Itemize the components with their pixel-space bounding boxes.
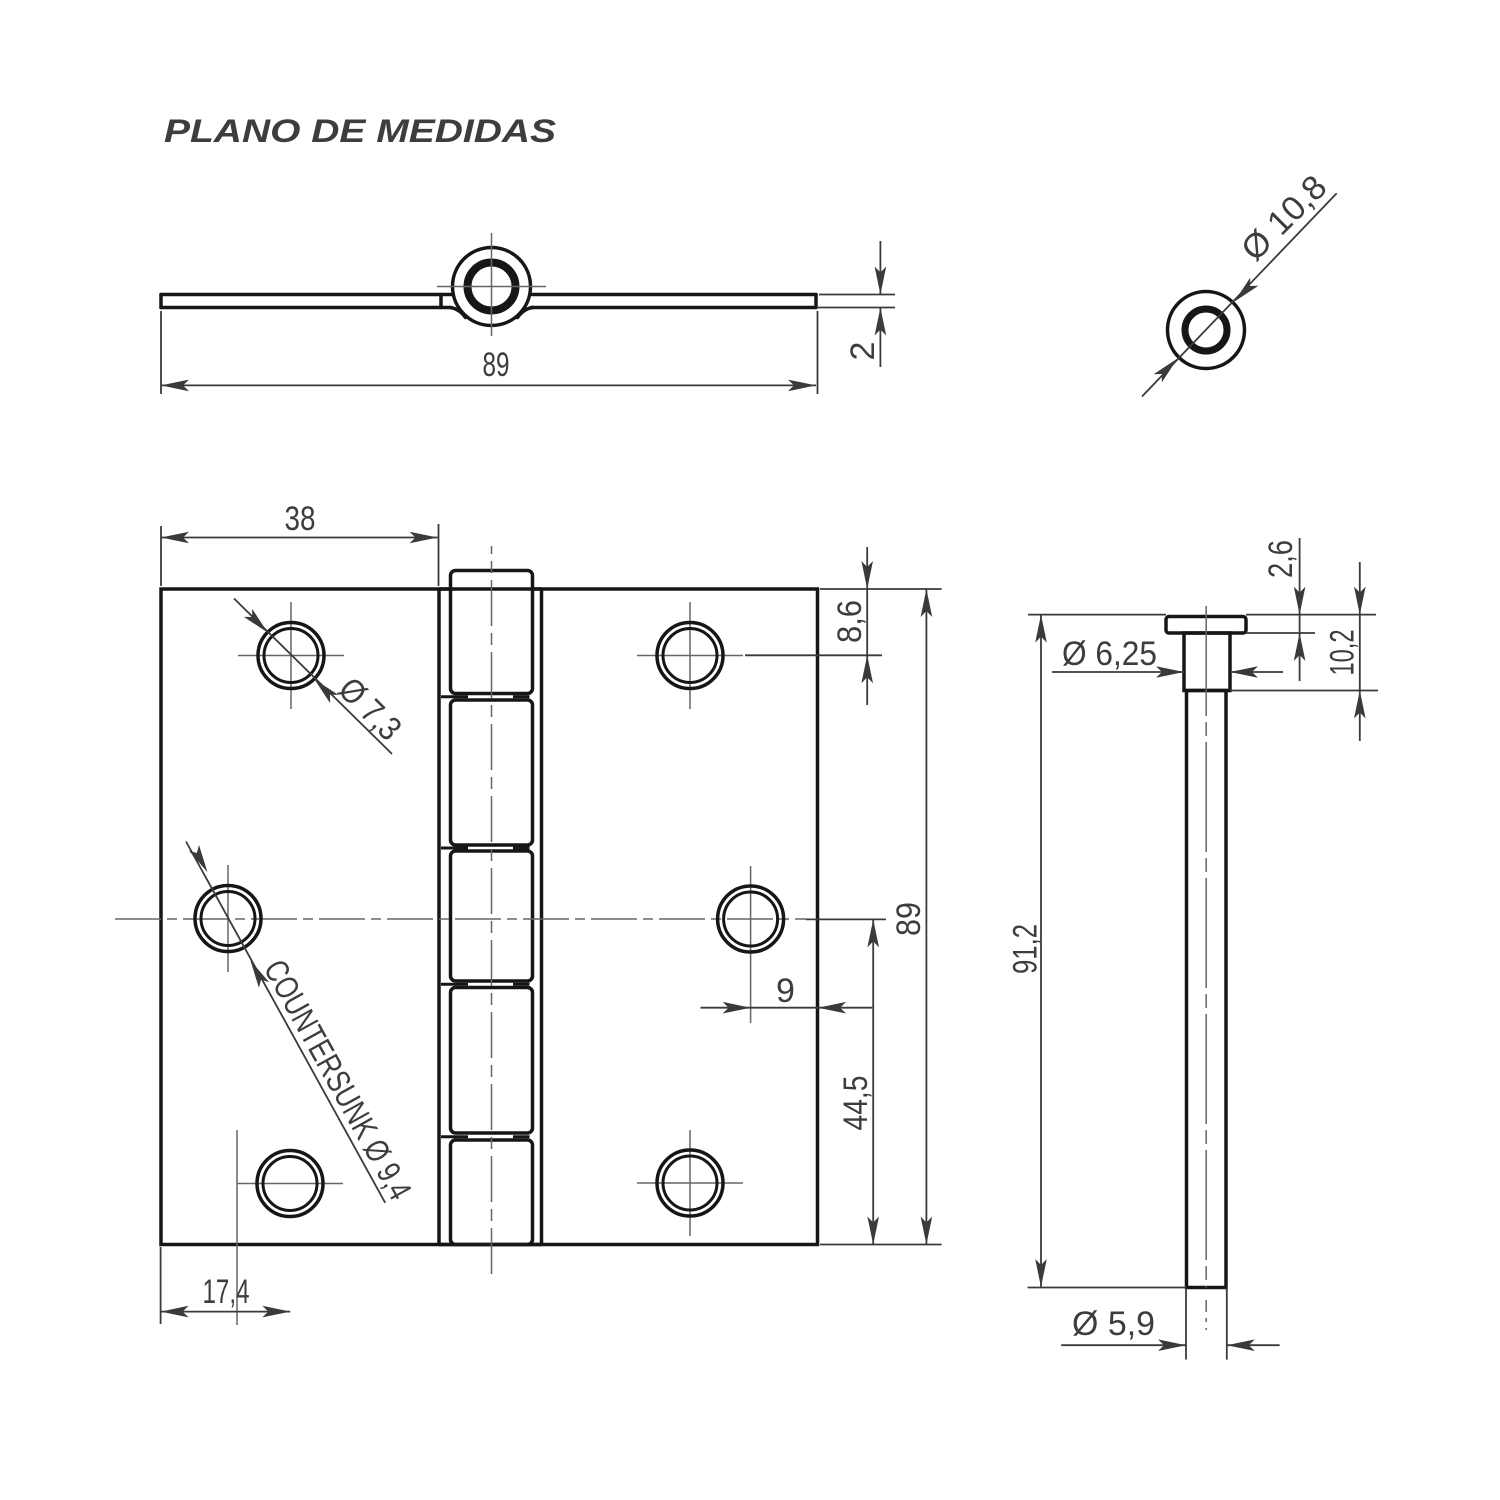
svg-text:10,2: 10,2 bbox=[1324, 630, 1362, 676]
svg-text:89: 89 bbox=[890, 902, 928, 936]
svg-text:9: 9 bbox=[776, 972, 795, 1010]
svg-text:2,6: 2,6 bbox=[1262, 540, 1300, 578]
svg-text:Ø 6,25: Ø 6,25 bbox=[1062, 635, 1157, 673]
svg-text:8,6: 8,6 bbox=[831, 600, 869, 643]
svg-text:2: 2 bbox=[844, 342, 882, 361]
svg-text:44,5: 44,5 bbox=[837, 1076, 875, 1131]
svg-text:COUNTERSUNK Ø 9,4: COUNTERSUNK Ø 9,4 bbox=[257, 953, 419, 1205]
svg-text:91,2: 91,2 bbox=[1007, 924, 1045, 974]
svg-text:17,4: 17,4 bbox=[203, 1273, 250, 1311]
svg-text:Ø 10,8: Ø 10,8 bbox=[1234, 168, 1334, 268]
svg-text:PLANO DE MEDIDAS: PLANO DE MEDIDAS bbox=[164, 113, 557, 149]
svg-text:Ø 5,9: Ø 5,9 bbox=[1072, 1305, 1155, 1343]
svg-text:Ø 7,3: Ø 7,3 bbox=[331, 670, 409, 748]
svg-text:38: 38 bbox=[285, 500, 316, 538]
svg-text:89: 89 bbox=[483, 346, 510, 384]
